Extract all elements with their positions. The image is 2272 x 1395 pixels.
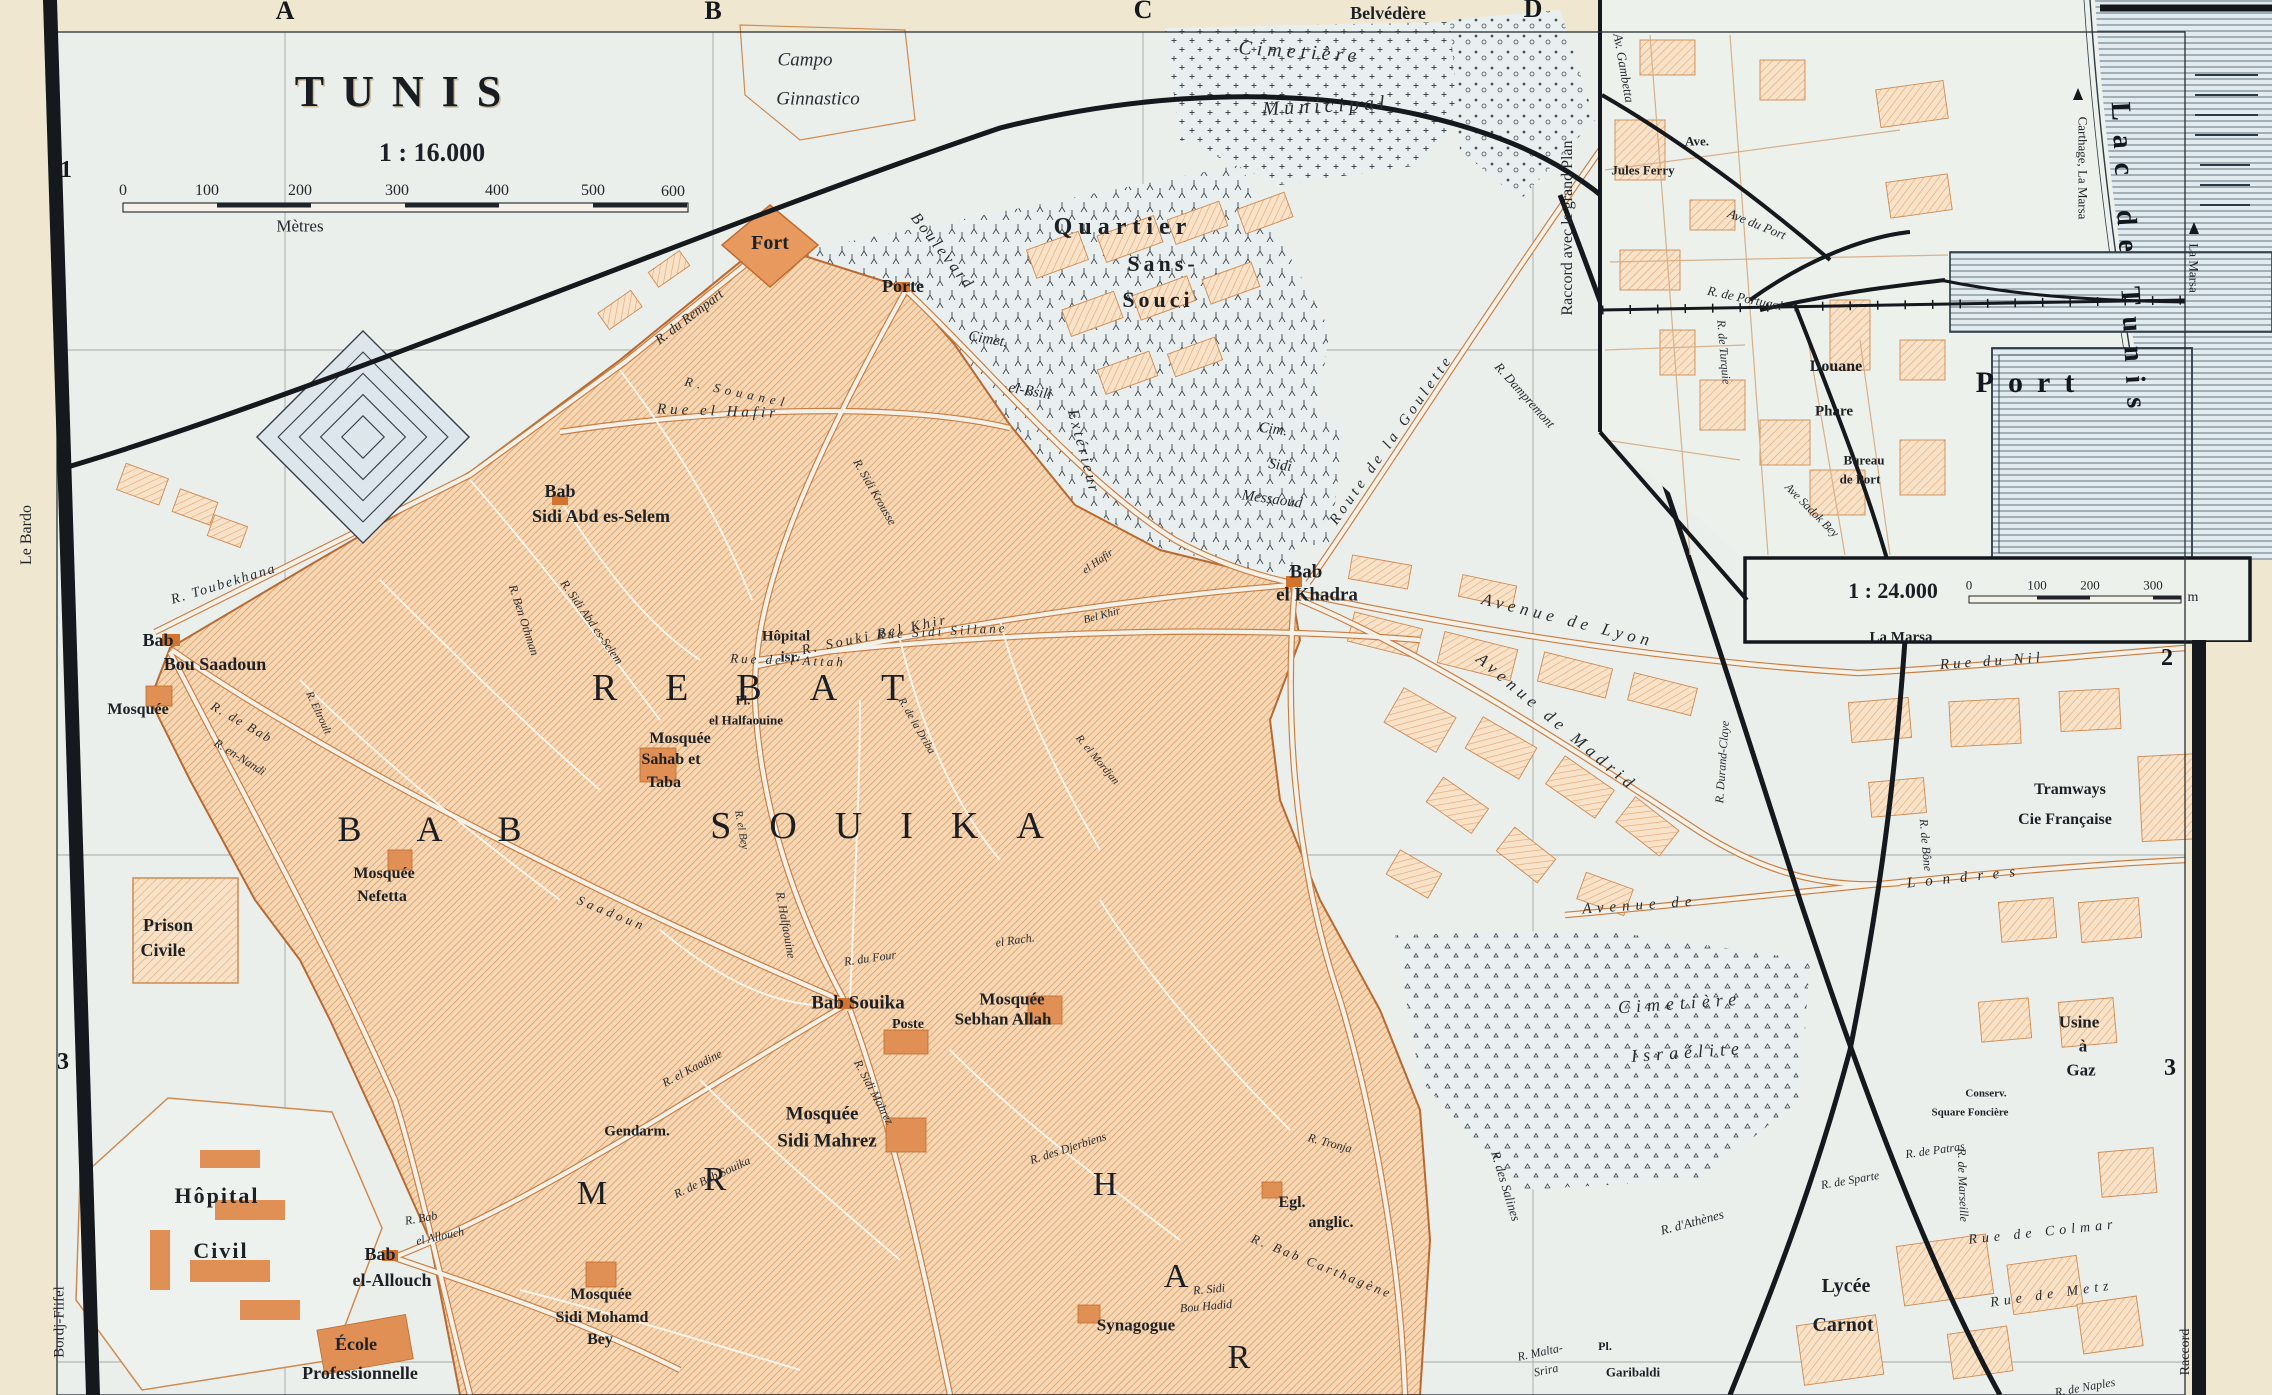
map-label: Srira (1533, 1362, 1560, 1379)
map-label: Rue de Colmar (1968, 1218, 2118, 1248)
map-label: R. Tronja (1307, 1131, 1353, 1154)
map-label: Mètres (276, 218, 323, 235)
map-label: Cie Française (2018, 812, 2112, 828)
map-label: Bab (544, 482, 575, 500)
map-label: R. Bab (404, 1209, 438, 1226)
map-label: B (704, 0, 721, 24)
map-label: el Hafir (1081, 548, 1116, 577)
map-label: TUNIS (295, 70, 520, 114)
map-label: Bab (364, 1245, 395, 1263)
map-label: 600 (661, 184, 685, 200)
map-label: Bou Saadoun (164, 655, 267, 673)
map-label: Mosquée (649, 731, 710, 747)
map-label: A (276, 0, 295, 24)
map-label: Sidi Mohamd (556, 1310, 649, 1326)
map-label: el Rach. (995, 931, 1036, 948)
map-label: Bab (142, 631, 173, 649)
map-label: Gaz (2066, 1062, 2095, 1079)
map-label: Pl. (1598, 1340, 1612, 1352)
map-label: Cimetière (1238, 38, 1362, 67)
map-label: 2 (2161, 646, 2173, 670)
map-label: R. Sidi (1193, 1282, 1226, 1297)
map-label: R. de Naples (2054, 1376, 2116, 1395)
map-label: Rue de l'Attah (730, 651, 846, 668)
map-label: Gendarm. (604, 1125, 669, 1140)
map-label: Israélite (1631, 1039, 1746, 1065)
map-label: Douane (1810, 359, 1862, 375)
map-label: C (1134, 0, 1153, 23)
map-label: R. Malta- (1516, 1341, 1563, 1362)
map-label: A (1164, 1260, 1189, 1294)
map-label: 1 : 24.000 (1848, 580, 1938, 602)
map-label: Prison (143, 916, 193, 934)
map-label: Route de la Goulette (1327, 352, 1456, 527)
map-label: R. Dampremont (1493, 360, 1558, 430)
map-label: m (2188, 591, 2199, 605)
map-label: Porte (882, 277, 924, 295)
map-label: 300 (385, 183, 409, 199)
map-label: R. en-Nandi (212, 737, 268, 778)
map-label: Conserv. (1965, 1089, 2006, 1100)
map-label: Carnot (1812, 1315, 1873, 1335)
map-label: Bey (587, 1332, 613, 1348)
map-label: el-Allouch (353, 1271, 432, 1289)
map-label: Rue de Metz (1990, 1279, 2115, 1310)
map-label: R. Durand-Claye (1713, 720, 1731, 803)
map-label: Sahab et (641, 752, 700, 768)
map-label: Campo (778, 51, 833, 70)
map-label: Municipal (1262, 93, 1390, 120)
map-label: el-Bsili (1007, 381, 1052, 403)
map-label: Messaoud (1241, 488, 1303, 511)
map-label: Ave. (1685, 135, 1709, 148)
map-label: Belvédère (1350, 4, 1426, 22)
map-label: Square Foncière (1932, 1108, 2009, 1119)
map-label: 100 (2027, 579, 2047, 592)
map-label: R. Sidi Krousse (851, 457, 898, 527)
map-label: Phare (1815, 405, 1853, 420)
map-label: Bab (1290, 563, 1323, 582)
map-label: Nefetta (357, 889, 407, 905)
map-label: Bureau (1844, 454, 1885, 467)
map-label: Taba (647, 775, 681, 791)
map-label: 500 (581, 183, 605, 199)
map-label: Egl. (1278, 1195, 1305, 1211)
map-label: Av. Gambetta (1612, 32, 1637, 103)
map-label: R. de Turquie (1715, 319, 1733, 384)
map-label: Raccord (2179, 1329, 2193, 1376)
map-label: BAB (337, 811, 576, 847)
map-label: La Marsa (2188, 243, 2201, 292)
map-label: 400 (485, 183, 509, 199)
map-label: de Port (1840, 473, 1881, 486)
map-label: Cim. (1258, 421, 1289, 440)
map-label: Fort (751, 233, 789, 253)
map-label: R. de Bône (1918, 818, 1935, 871)
map-label: R. du Rempart (653, 288, 726, 348)
map-label: Cimet. (967, 329, 1009, 351)
map-label: Bordj-Flifel (53, 1286, 68, 1358)
map-label: Ave du Port (1726, 206, 1788, 241)
map-label: Jules Ferry (1611, 164, 1674, 177)
map-label: Civil (193, 1240, 248, 1262)
map-label: Professionnelle (302, 1364, 418, 1382)
map-label: 1 : 16.000 (379, 140, 485, 166)
map-label: Sebhan Allah (955, 1011, 1052, 1028)
map-sheet: ABCD12323Le BardoBordj-FlifelTUNIS1 : 16… (0, 0, 2272, 1395)
map-label: Carthage, La Marsa (2077, 117, 2090, 220)
map-label: Extérieur (1064, 408, 1102, 497)
map-label: Tramways (2034, 782, 2106, 798)
map-label: Quartier (1054, 215, 1193, 239)
map-label: Bab Souika (811, 994, 904, 1013)
map-label: R. Ben Othman (507, 583, 541, 657)
map-label: R (1228, 1341, 1251, 1375)
map-label: R. el Kaadine (660, 1047, 724, 1088)
map-label: Mosquée (570, 1287, 631, 1303)
map-label: Lac de Tunis (2106, 101, 2151, 423)
map-label: 0 (119, 183, 127, 199)
map-label: Sans- (1127, 253, 1198, 275)
map-label: Mosquée (107, 702, 168, 718)
map-label: R. de Marseille (1956, 1148, 1971, 1222)
map-label: 300 (2143, 579, 2163, 592)
map-label: anglic. (1309, 1215, 1354, 1231)
map-label: Ginnastico (776, 90, 859, 109)
map-label: R. des Salines (1489, 1149, 1523, 1222)
map-label: el Allouch (415, 1225, 465, 1247)
map-label: R. Toubekhana (170, 562, 279, 607)
map-label: Raccord avec le grand Plan (1560, 140, 1576, 315)
map-label: D (1524, 0, 1543, 22)
map-label: Rue du Nil (1940, 651, 2045, 673)
map-label: Hôpital (762, 630, 810, 645)
map-label: R. d'Athènes (1659, 1207, 1725, 1236)
map-label: SOUIKA (710, 807, 1082, 845)
map-label: à (2079, 1038, 2088, 1055)
map-label: R. Sidi Mahrez (852, 1058, 896, 1127)
map-label: Avenue de (1582, 894, 1698, 917)
map-label: el Khadra (1276, 586, 1358, 605)
map-label: Usine (2059, 1014, 2100, 1031)
map-label: Souci (1122, 289, 1193, 311)
map-label: R. des Djerbiens (1028, 1130, 1107, 1166)
map-label: Rue el Hafir (657, 402, 780, 421)
map-label: Hôpital (175, 1185, 260, 1207)
map-label: R. du Four (843, 948, 897, 967)
map-label: Sidi Mahrez (777, 1132, 876, 1151)
map-label: R. Bab Carthagène (1250, 1232, 1395, 1301)
map-label: H (1093, 1168, 1118, 1202)
map-label: 200 (2080, 579, 2100, 592)
map-label: Avenue de Madrid (1473, 650, 1641, 795)
map-label: 1 (60, 158, 72, 182)
map-label: Lycée (1822, 1276, 1871, 1296)
map-label: 3 (2164, 1056, 2176, 1080)
map-label: Ave Sadok Bey (1783, 481, 1841, 539)
map-label: Bel Khir (1082, 606, 1121, 626)
map-label: Saadoun (575, 893, 648, 933)
map-label: Poste (892, 1018, 924, 1032)
map-label: R. de Portugal (1706, 284, 1783, 313)
map-label: Cimetière (1617, 990, 1742, 1017)
map-label: R. Halfaouine (774, 891, 798, 959)
map-label: R. el Mordjan (1073, 733, 1121, 787)
map-label: Garibaldi (1606, 1366, 1660, 1379)
map-label: R. de Sparte (1820, 1169, 1880, 1191)
map-label: Avenue de Lyon (1480, 590, 1656, 649)
map-label: École (335, 1335, 377, 1353)
map-label: Sidi Abd es-Selem (532, 507, 670, 525)
map-label: M (577, 1177, 607, 1211)
map-label: 0 (1966, 579, 1973, 592)
map-label: 3 (57, 1050, 69, 1074)
map-label: Mosquée (979, 991, 1044, 1008)
map-label: Sidi (1267, 457, 1292, 475)
map-label: Le Bardo (19, 505, 35, 565)
map-label: Synagogue (1097, 1317, 1175, 1334)
map-label: Port (1976, 368, 2089, 398)
map-label: 100 (195, 183, 219, 199)
map-label: el Halfaouine (709, 714, 783, 727)
map-label: R. Eltroult (303, 690, 332, 736)
map-label: REBAT (592, 669, 952, 707)
map-label: Bou Hadid (1179, 1298, 1232, 1315)
labels-layer: ABCD12323Le BardoBordj-FlifelTUNIS1 : 16… (0, 0, 2272, 1395)
map-label: Mosquée (786, 1105, 859, 1124)
map-label: R. Sidi Abd es-Selem (558, 578, 625, 667)
map-label: La Marsa (1870, 631, 1933, 646)
map-label: 200 (288, 183, 312, 199)
map-label: 2 (64, 625, 76, 649)
map-label: Civile (141, 941, 186, 959)
map-label: Mosquée (353, 866, 414, 882)
